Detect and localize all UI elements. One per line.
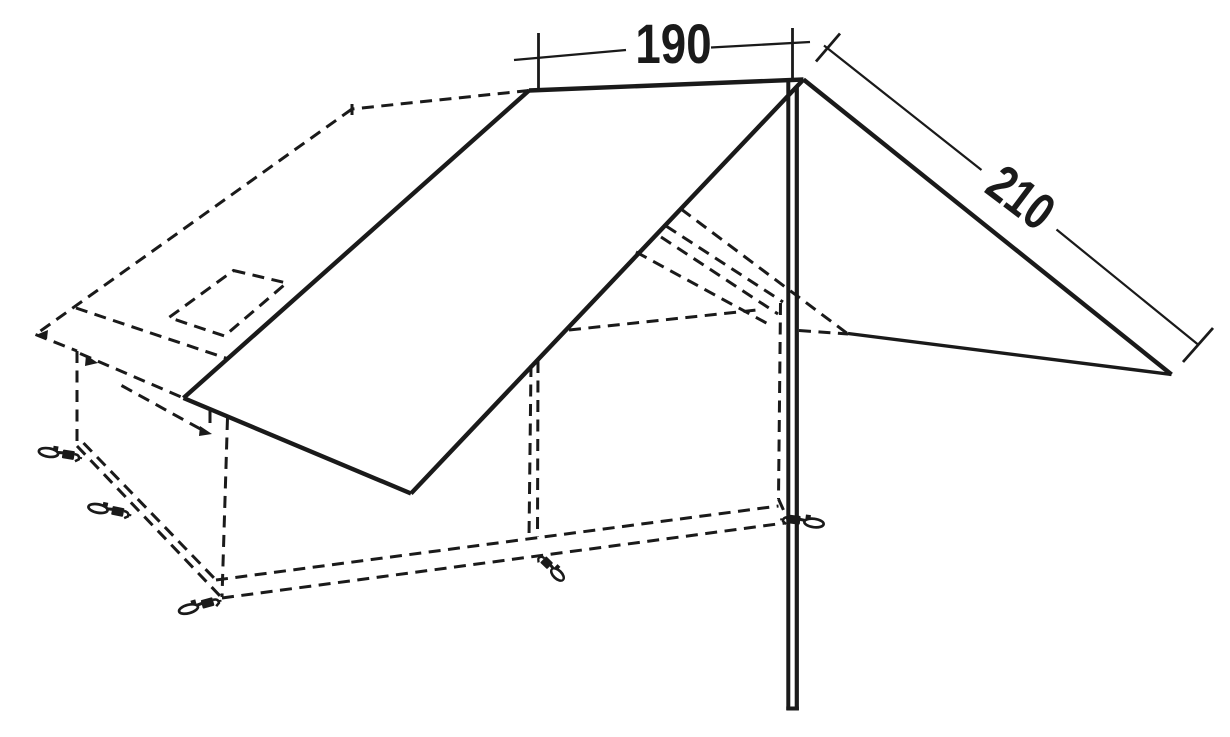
svg-text:190: 190 [635,12,711,74]
